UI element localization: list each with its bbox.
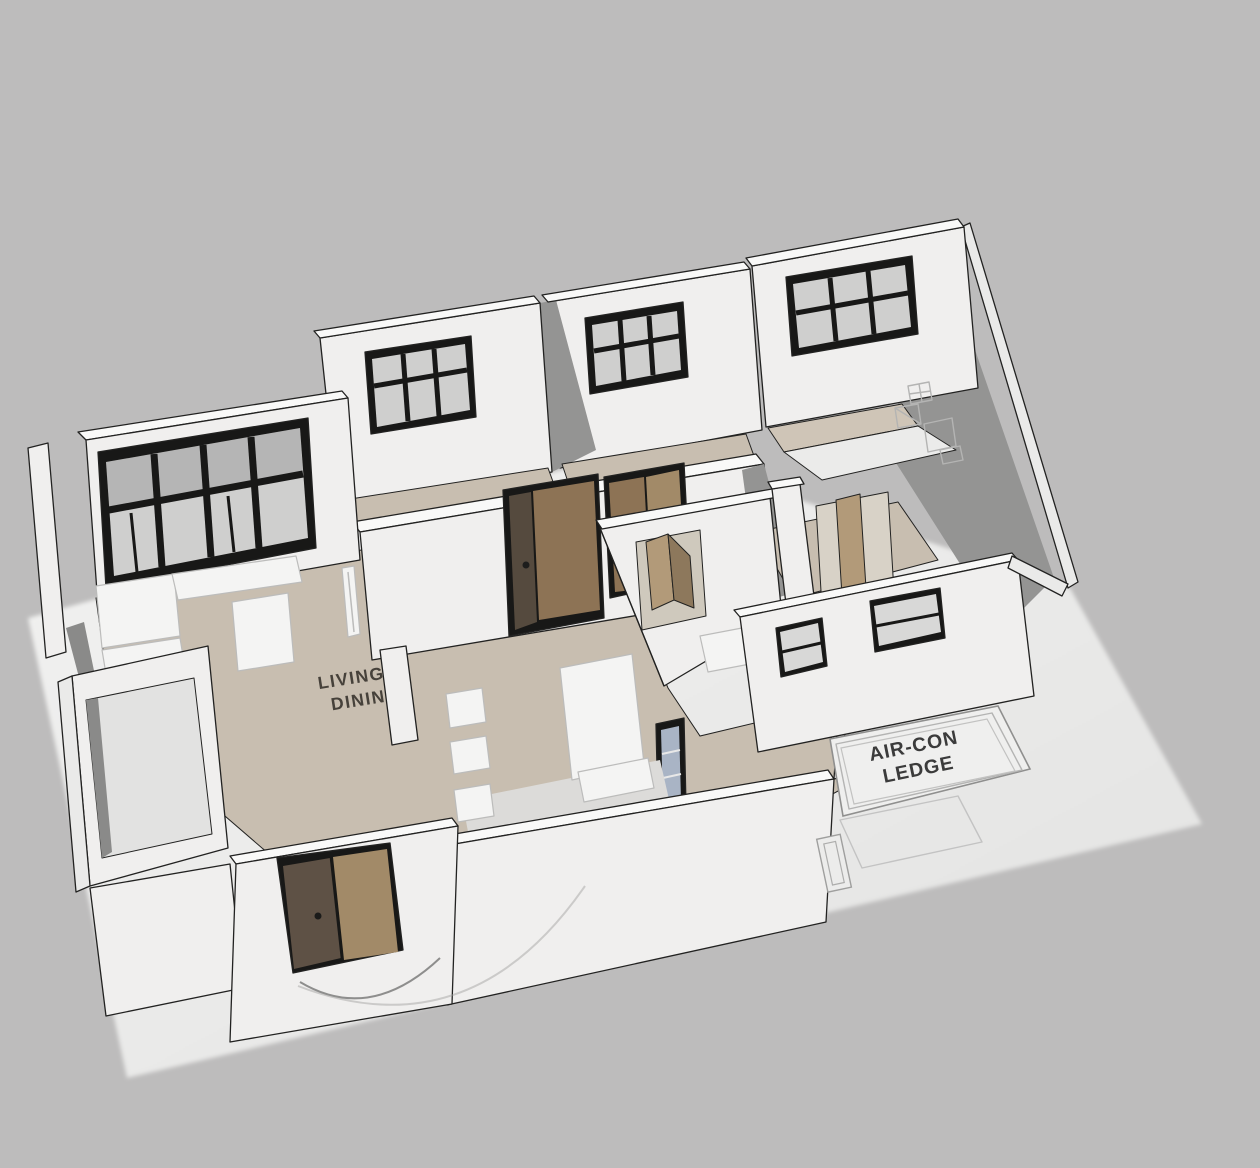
model-viewport[interactable]: LIVING/ DINING: [0, 0, 1260, 1168]
window-bedroom2: [585, 302, 688, 394]
entrance-door: [277, 843, 403, 973]
coffee-table: [232, 593, 294, 671]
door-bedroom1: [503, 474, 604, 636]
wc-bifold-door: [636, 530, 706, 630]
window-bath-1: [776, 618, 827, 677]
door-handle: [315, 913, 322, 920]
floor-plan-3d-view[interactable]: LIVING/ DINING: [0, 0, 1260, 1168]
window-bedroom1: [365, 336, 476, 434]
store-room: [58, 622, 228, 892]
